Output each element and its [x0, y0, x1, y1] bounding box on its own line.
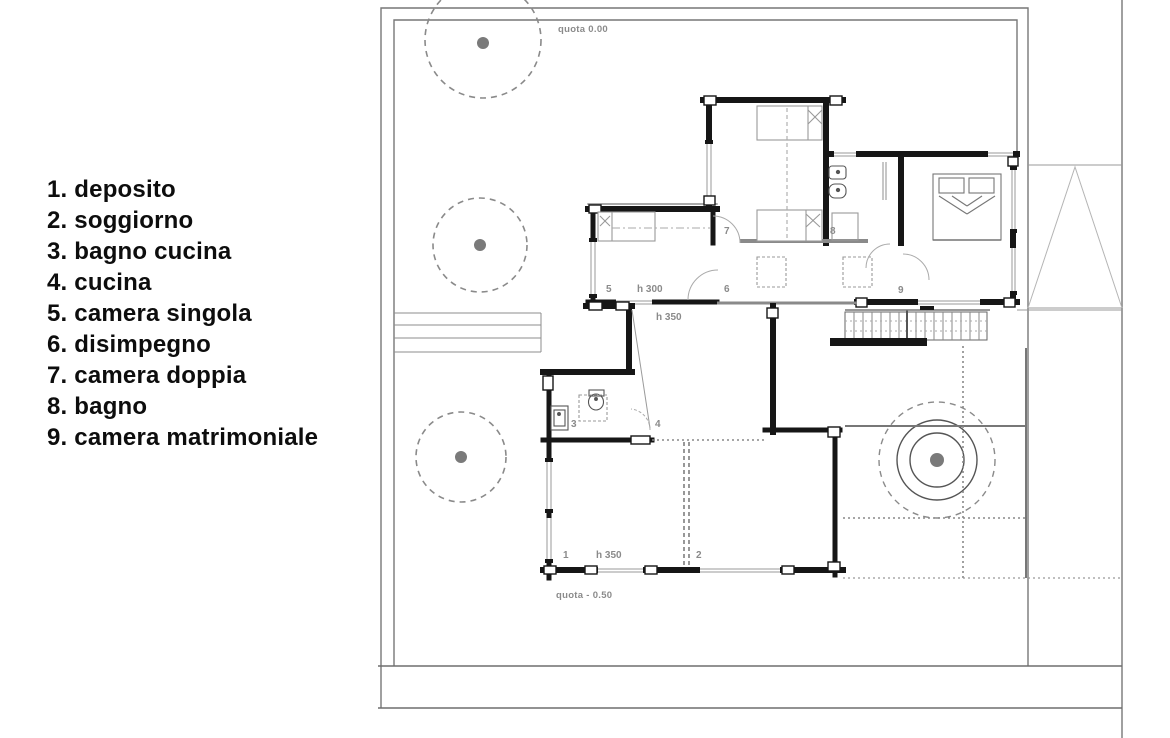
corridor-lines: [717, 241, 868, 303]
room5-number: 5: [606, 284, 612, 295]
bed-room5: [598, 212, 655, 241]
room7-number: 7: [724, 226, 730, 237]
ramp-triangle: [1028, 167, 1122, 308]
side-plot: [1017, 165, 1122, 310]
tree-2: [433, 198, 527, 292]
road-band: [378, 666, 1122, 708]
toilet-bath3: [589, 390, 605, 410]
bidet-bath8: [829, 184, 846, 198]
h300-label: h 300: [637, 284, 663, 295]
h350-lower-label: h 350: [596, 550, 622, 561]
tree-3: [416, 412, 506, 502]
floor-plan-drawing: quota 0.00 quota - 0.50 5 h 300 6 7 8 9 …: [0, 0, 1170, 738]
shower-bath8: [832, 162, 886, 240]
window-room2-south: [700, 567, 780, 574]
room4-number: 4: [655, 419, 661, 430]
window-room9-east-1: [1010, 166, 1017, 233]
lower-block-walls: [543, 306, 843, 578]
floor-plan-page: 1. deposito 2. soggiorno 3. bagno cucina…: [0, 0, 1170, 738]
h350-kitchen-label: h 350: [656, 312, 682, 323]
external-stair: [830, 299, 990, 346]
room1-number: 1: [563, 550, 569, 561]
washbasin-bath3: [551, 406, 568, 430]
bed-room7-a: [757, 106, 822, 140]
bed-room7-b: [757, 210, 822, 241]
terrace-paving: [843, 346, 1122, 578]
quota-lower-label: quota - 0.50: [556, 590, 612, 601]
room6-number: 6: [724, 284, 730, 295]
window-room1-west-1: [545, 458, 553, 513]
room8-number: 8: [830, 226, 836, 237]
site-boundary: [381, 0, 1122, 738]
window-corridor-south: [918, 299, 980, 306]
room1-room2-divider: [684, 442, 689, 565]
window-bath8-north: [834, 151, 856, 158]
bed-room9: [933, 174, 1001, 240]
window-room1-west-2: [545, 518, 553, 563]
window-room1-south: [598, 567, 643, 574]
tree-4: [879, 402, 995, 518]
quota-upper-label: quota 0.00: [558, 24, 608, 35]
window-room9-east-2: [1010, 248, 1017, 295]
room9-number: 9: [898, 285, 904, 296]
furniture: [598, 106, 1001, 287]
garden-steps: [394, 313, 541, 352]
wardrobe-1: [757, 257, 786, 287]
window-room5-west: [589, 238, 597, 298]
room3-number: 3: [571, 419, 577, 430]
tree-1: [425, 0, 541, 98]
wardrobe-2: [843, 257, 872, 287]
toilet-bath8: [829, 166, 846, 179]
window-room7-west: [705, 140, 713, 203]
bath3-fixtures: [551, 390, 607, 430]
room2-number: 2: [696, 550, 702, 561]
